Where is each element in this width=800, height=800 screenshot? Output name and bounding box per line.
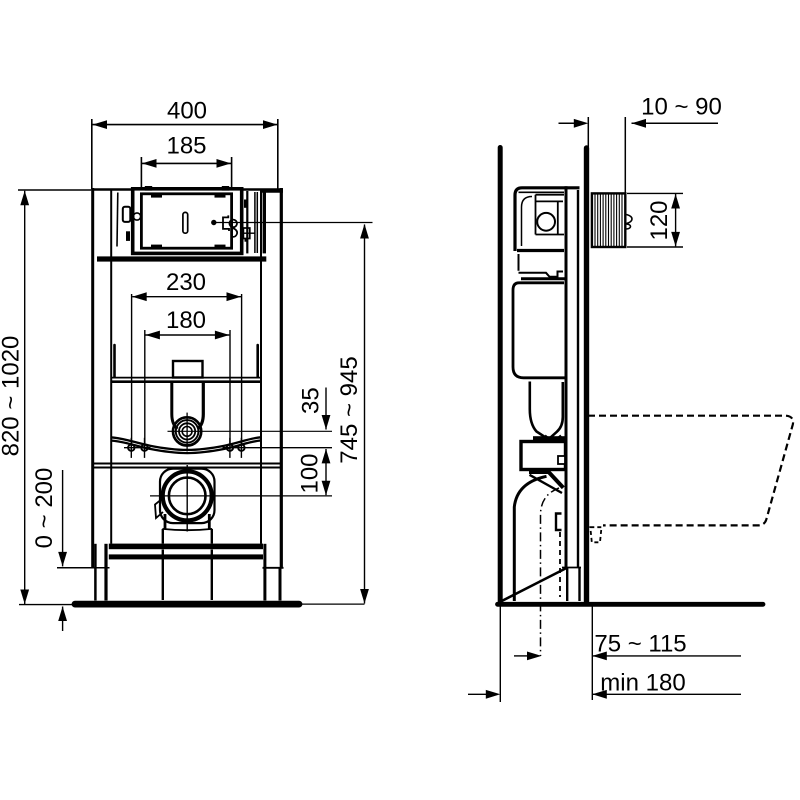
svg-text:0 ~ 200: 0 ~ 200 bbox=[31, 468, 58, 549]
svg-text:180: 180 bbox=[166, 307, 206, 334]
svg-text:120: 120 bbox=[646, 200, 673, 240]
svg-text:400: 400 bbox=[167, 98, 207, 125]
svg-text:820 ~ 1020: 820 ~ 1020 bbox=[0, 336, 24, 457]
svg-text:10 ~ 90: 10 ~ 90 bbox=[641, 94, 722, 121]
svg-text:185: 185 bbox=[166, 133, 206, 160]
svg-text:75 ~ 115: 75 ~ 115 bbox=[594, 631, 686, 658]
svg-text:100: 100 bbox=[297, 453, 324, 493]
svg-text:745 ~ 945: 745 ~ 945 bbox=[336, 356, 363, 463]
svg-text:min 180: min 180 bbox=[600, 670, 685, 697]
svg-text:35: 35 bbox=[298, 387, 325, 414]
svg-text:230: 230 bbox=[166, 269, 206, 296]
